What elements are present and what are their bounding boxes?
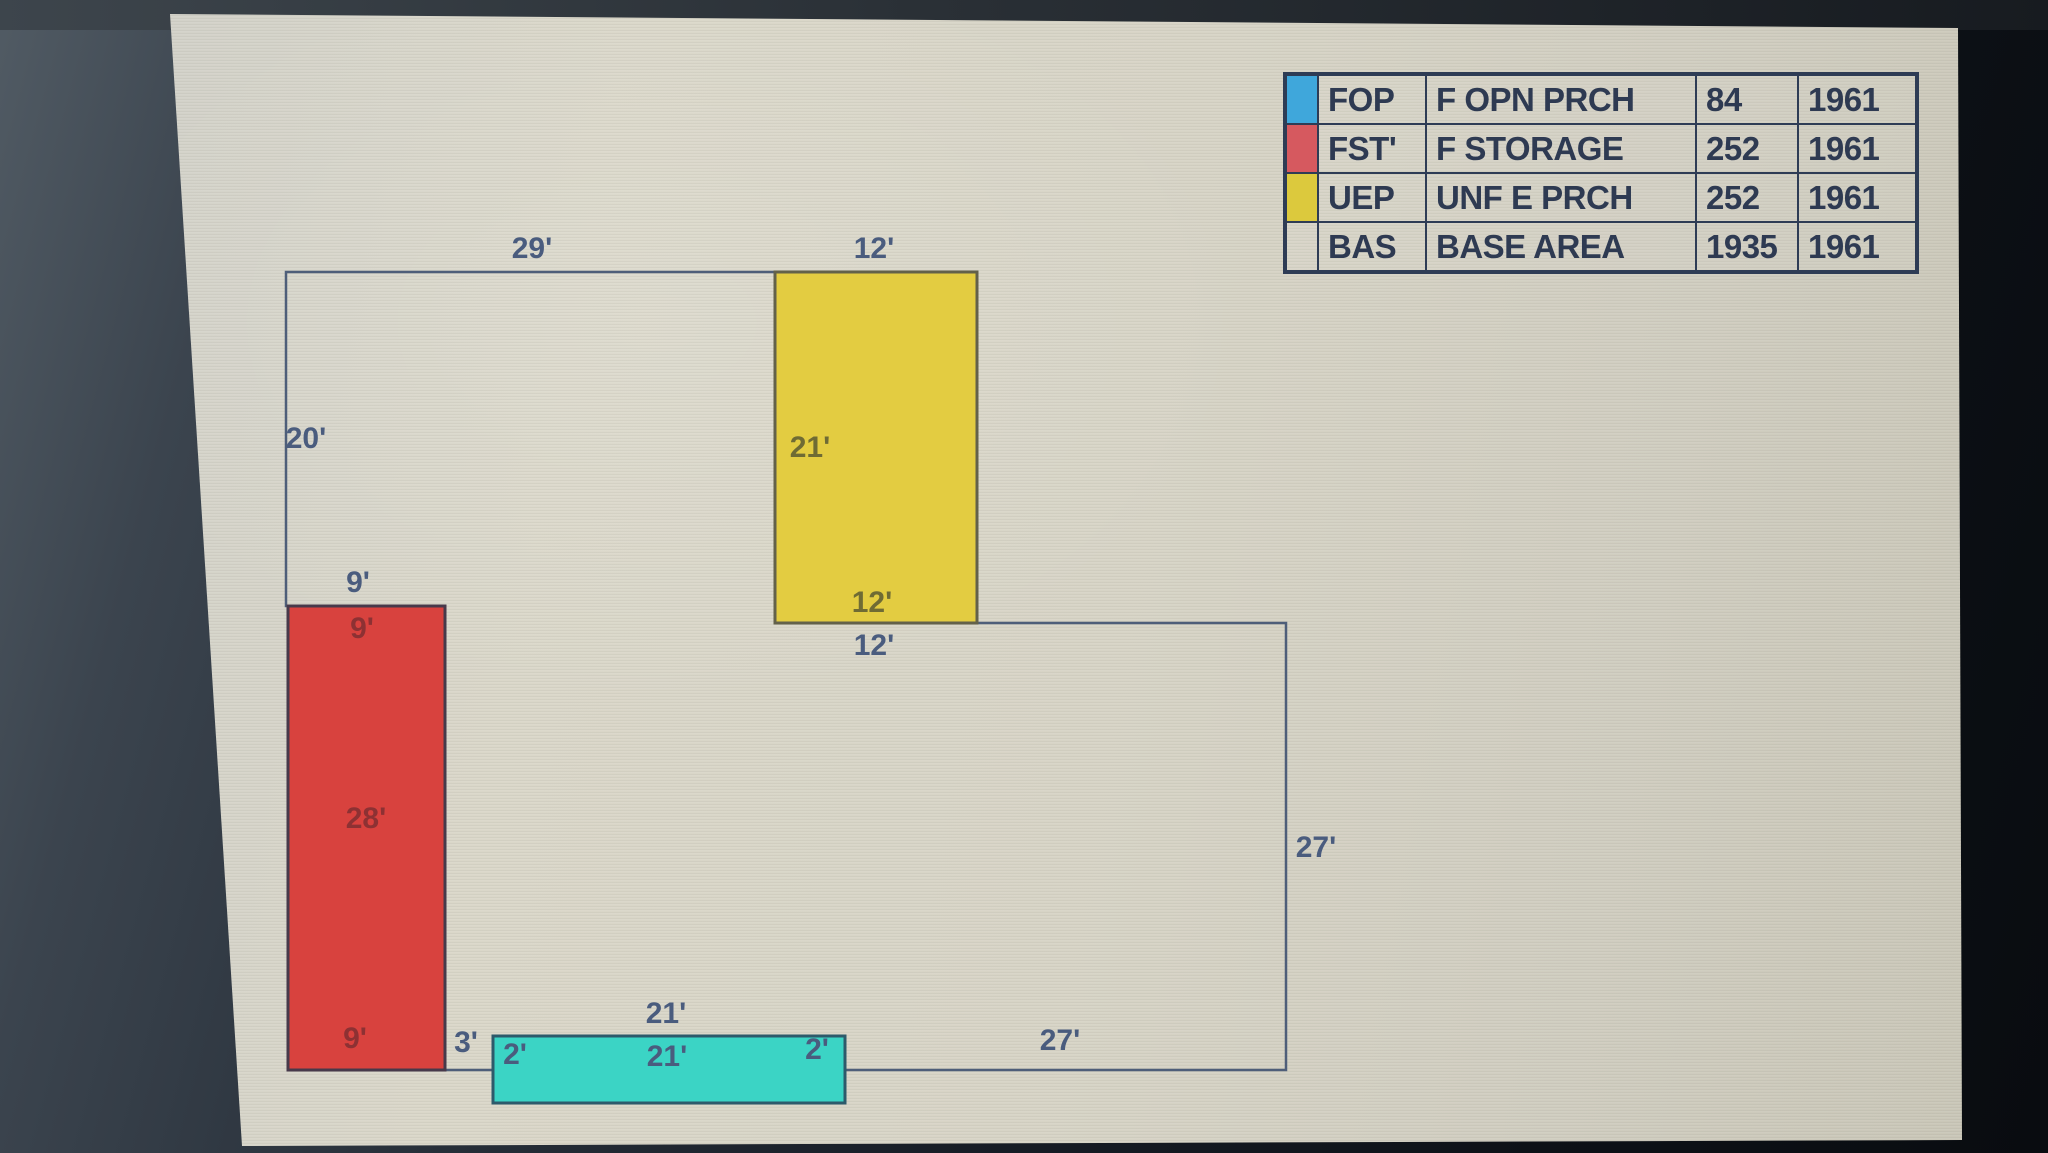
dim-fop-right-depth: 2'	[805, 1033, 829, 1066]
dim-uep-height: 21'	[790, 431, 831, 464]
legend-row-1-year: 1961	[1798, 124, 1916, 173]
legend-row-0-year: 1961	[1798, 75, 1916, 124]
legend-row-0-swatch color-swatch-blue	[1286, 75, 1318, 124]
dim-base-upper-width: 12'	[854, 629, 895, 662]
legend-row-2-area: 252	[1696, 173, 1798, 222]
dim-fop-inner-width: 21'	[647, 1040, 688, 1073]
legend-row-1-area: 252	[1696, 124, 1798, 173]
legend-row-2-swatch color-swatch-yellow	[1286, 173, 1318, 222]
fst-storage-region	[288, 606, 445, 1070]
dim-gap-width: 3'	[454, 1026, 478, 1059]
dim-fst-bottom-width: 9'	[343, 1022, 367, 1055]
dim-uep-top-width: 12'	[854, 232, 895, 265]
dim-fst-top-width-inner: 9'	[350, 612, 374, 645]
legend-row-3-swatch color-swatch-none	[1286, 222, 1318, 271]
legend-row-2-code: UEP	[1318, 173, 1426, 222]
dim-base-bottom-width: 27'	[1040, 1024, 1081, 1057]
legend-row-0-code: FOP	[1318, 75, 1426, 124]
dim-fop-left-depth: 2'	[503, 1038, 527, 1071]
legend-row-1-description: F STORAGE	[1426, 124, 1696, 173]
dim-fst-top-width-outer: 9'	[346, 566, 370, 599]
legend-table: FOP F OPN PRCH 84 1961 FST' F STORAGE 25…	[1283, 72, 1919, 274]
legend-row-2-year: 1961	[1798, 173, 1916, 222]
legend-row-3-year: 1961	[1798, 222, 1916, 271]
dim-left-height: 20'	[286, 422, 327, 455]
dim-uep-bottom-width: 12'	[852, 586, 893, 619]
legend-row-3-description: BASE AREA	[1426, 222, 1696, 271]
dim-top-width: 29'	[512, 232, 553, 265]
legend-row-2-description: UNF E PRCH	[1426, 173, 1696, 222]
photo-background: 29' 12' 20' 21' 12' 12' 9' 9' 28' 9' 3' …	[0, 0, 2048, 1153]
dim-fop-top-width: 21'	[646, 997, 687, 1030]
screen: 29' 12' 20' 21' 12' 12' 9' 9' 28' 9' 3' …	[0, 0, 2048, 1153]
legend-row-0-area: 84	[1696, 75, 1798, 124]
dim-fst-height: 28'	[346, 802, 387, 835]
dim-base-right-height: 27'	[1296, 831, 1337, 864]
legend-row-1-code: FST'	[1318, 124, 1426, 173]
legend-row-3-code: BAS	[1318, 222, 1426, 271]
legend-row-0-description: F OPN PRCH	[1426, 75, 1696, 124]
legend-row-1-swatch color-swatch-red	[1286, 124, 1318, 173]
legend-row-3-area: 1935	[1696, 222, 1798, 271]
